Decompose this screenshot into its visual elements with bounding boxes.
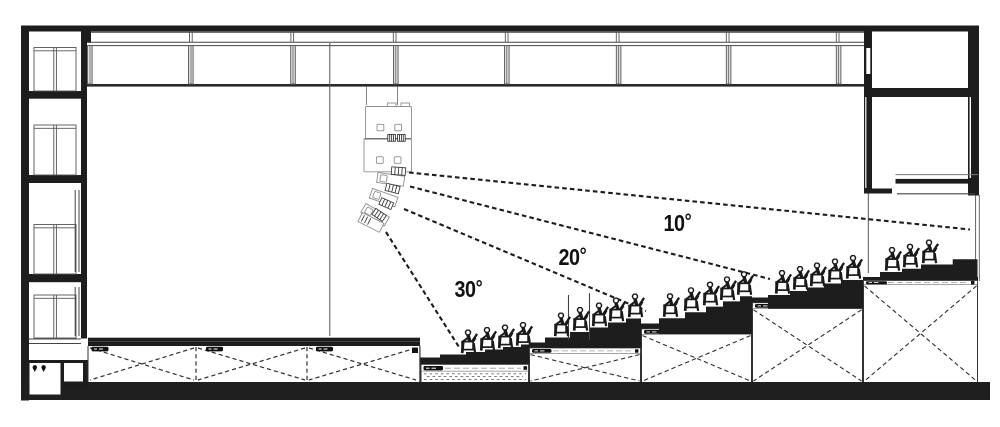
svg-text:20°: 20° xyxy=(559,243,587,270)
svg-text:10°: 10° xyxy=(664,209,692,236)
svg-text:30°: 30° xyxy=(455,275,483,302)
